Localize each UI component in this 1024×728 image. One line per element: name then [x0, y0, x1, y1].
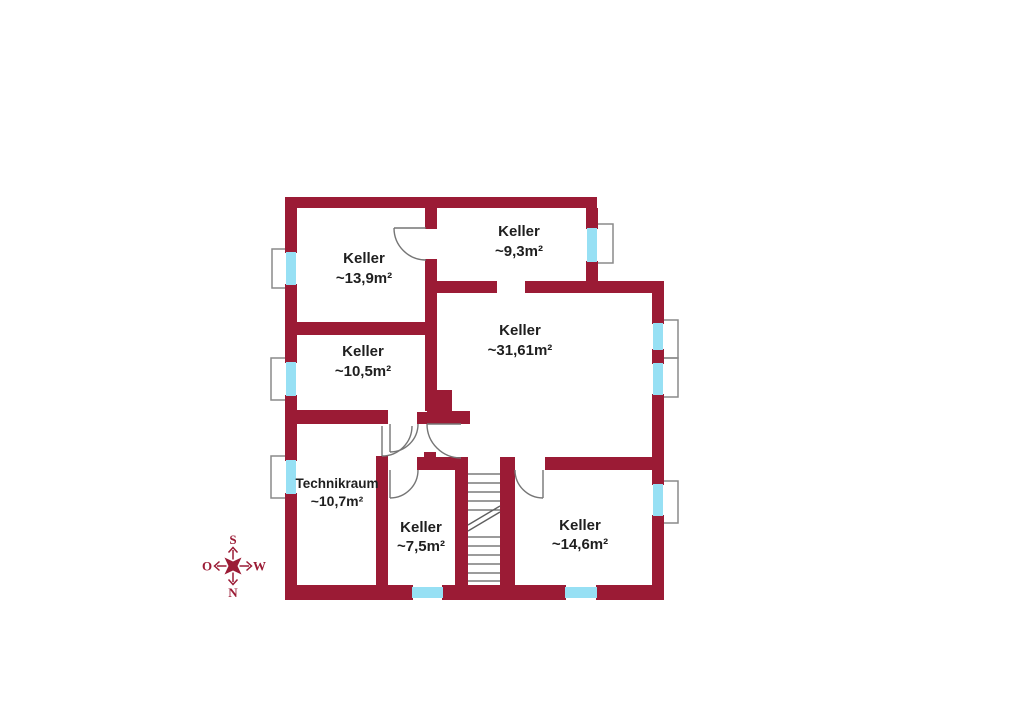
room-area: ~10,5m²	[335, 363, 391, 380]
wall-bottom	[285, 585, 413, 600]
room-area: ~10,7m²	[311, 493, 364, 509]
wall-left	[285, 493, 297, 600]
wall-interior	[285, 410, 388, 424]
wall-interior	[417, 457, 468, 470]
wall-bottom	[596, 585, 664, 600]
window	[653, 484, 663, 516]
window	[286, 362, 296, 396]
room-name: Keller	[343, 250, 385, 267]
window	[653, 323, 663, 350]
compass-label-right: W	[253, 559, 266, 574]
room-area: ~13,9m²	[336, 270, 392, 287]
window	[653, 363, 663, 395]
wall-right-mullion	[652, 349, 664, 364]
wall-interior	[525, 281, 664, 293]
compass-label-bottom: N	[228, 585, 238, 600]
stairwell-wall-left	[455, 470, 468, 585]
wall-interior	[545, 457, 664, 470]
wall-right-upper	[586, 208, 598, 229]
wall-interior	[425, 197, 437, 229]
chimney-block	[417, 412, 427, 424]
wall-right	[652, 293, 664, 324]
wall-interior	[285, 322, 437, 335]
window	[286, 252, 296, 285]
wall-right-upper	[586, 261, 598, 282]
wall-interior	[437, 281, 497, 293]
room-name: Keller	[342, 343, 384, 360]
stairwell-wall-right	[500, 457, 515, 585]
room-name: Keller	[499, 322, 541, 339]
floor-plan-page: Keller ~13,9m² Keller ~9,3m² Keller ~31,…	[0, 0, 1024, 728]
room-area: ~9,3m²	[495, 243, 543, 260]
room-name: Keller	[400, 519, 442, 536]
room-area: ~14,6m²	[552, 536, 608, 553]
chimney-block	[427, 390, 452, 424]
compass-label-top: S	[229, 532, 236, 547]
room-name: Technikraum	[295, 476, 378, 491]
room-name: Keller	[498, 223, 540, 240]
canvas-background	[0, 0, 1024, 728]
compass-label-left: O	[202, 559, 212, 574]
wall-top	[285, 197, 597, 208]
room-area: ~31,61m²	[488, 342, 553, 359]
wall-left	[285, 395, 297, 461]
wall-left	[285, 197, 297, 253]
wall-bottom	[442, 585, 566, 600]
window	[587, 228, 597, 262]
wall-interior	[452, 411, 470, 424]
floor-plan: Keller ~13,9m² Keller ~9,3m² Keller ~31,…	[0, 0, 1024, 728]
wall-right	[652, 394, 664, 485]
window	[565, 587, 597, 598]
room-name: Keller	[559, 517, 601, 534]
window	[412, 587, 443, 598]
room-area: ~7,5m²	[397, 538, 445, 555]
